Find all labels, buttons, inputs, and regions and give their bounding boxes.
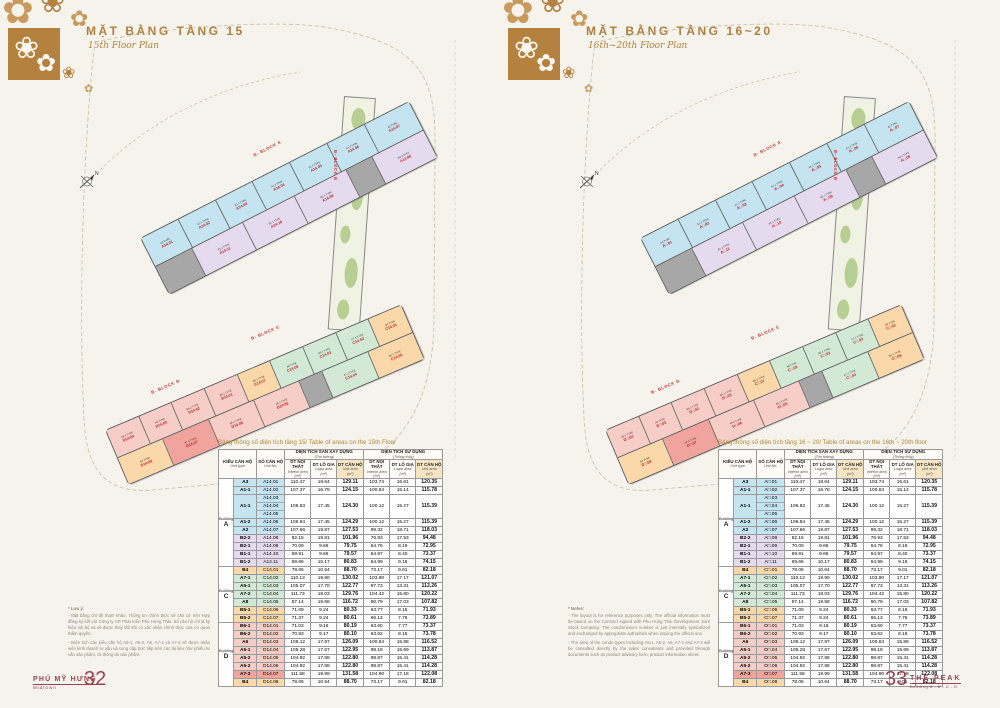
- cell-unit-number: C14.05: [257, 599, 285, 607]
- cell-unit-type: A5-1: [234, 583, 257, 591]
- cell-area-value: 98.18: [864, 647, 890, 655]
- cell-area-value: 17.45: [311, 495, 337, 519]
- page-number: 32: [84, 668, 106, 691]
- cell-area-value: 103.90: [364, 575, 390, 583]
- cell-area-value: 80.83: [337, 559, 364, 567]
- cell-area-value: 121.07: [416, 575, 443, 583]
- cell-unit-type: B2-2: [234, 535, 257, 543]
- cell-unit-number: D□.04: [757, 647, 785, 655]
- table-row: B1-1A14.1069.919.6679.5764.978.4073.37: [219, 551, 443, 559]
- cell-area-value: 7.77: [890, 623, 916, 631]
- cell-area-value: 98.87: [364, 663, 390, 671]
- cell-area-value: 9.01: [890, 567, 916, 575]
- cell-unit-type: B5-1: [734, 607, 757, 615]
- cell-area-value: 100.12: [364, 519, 390, 527]
- cell-area-value: 97.14: [285, 599, 311, 607]
- cell-area-value: 129.76: [837, 591, 864, 599]
- table-row: A7-2C14.04111.7318.03129.76104.4215.8012…: [219, 591, 443, 599]
- note-paragraph: - Diện tích các kiểu căn hộ A5-1, A5-2, …: [68, 640, 210, 658]
- page-title: MẶT BẰNG TẦNG 16~20: [586, 24, 773, 38]
- cell-unit-number: C14.07: [257, 615, 285, 623]
- cell-area-value: 130.02: [837, 575, 864, 583]
- cell-unit-type: B4: [734, 679, 757, 687]
- cell-area-value: 97.73: [864, 583, 890, 591]
- table-row: A5-2D□.05104.9217.88122.8098.8715.41114.…: [719, 655, 943, 663]
- cell-area-value: 104.92: [285, 663, 311, 671]
- page-title: MẶT BẰNG TẦNG 15: [86, 24, 245, 38]
- cell-unit-type: A7-3: [734, 671, 757, 679]
- table-row: A7-3D14.07111.5819.99131.58104.9017.1812…: [219, 671, 443, 679]
- col-header: SỐ CĂN HỘUnit No.: [257, 450, 285, 479]
- cell-area-value: 105.28: [285, 647, 311, 655]
- building-label: BuildingA: [719, 479, 734, 567]
- cell-area-value: 10.64: [811, 679, 837, 687]
- area-table-container: KIỂU CĂN HỘUnit typeSỐ CĂN HỘUnit No.DIỆ…: [718, 449, 943, 687]
- cell-area-value: 115.39: [416, 519, 443, 527]
- cell-unit-type: A3: [734, 479, 757, 487]
- cell-area-value: 118.03: [416, 527, 443, 535]
- cell-unit-number: D□.08: [757, 679, 785, 687]
- cell-area-value: 17.45: [311, 519, 337, 527]
- cell-unit-type: B4: [234, 679, 257, 687]
- cell-area-value: 115.78: [916, 487, 943, 495]
- flower-decoration: ✿ ❀ ✿ ❀ ✿ ❀ ✿: [500, 0, 615, 105]
- cell-area-value: 16.61: [890, 479, 916, 487]
- table-row: A5-2D□.06104.9217.88122.8098.8715.41114.…: [719, 663, 943, 671]
- cell-area-value: 9.66: [311, 543, 337, 551]
- cell-area-value: 10.64: [311, 679, 337, 687]
- cell-unit-number: D□.03: [757, 639, 785, 647]
- cell-area-value: 69.66: [285, 559, 311, 567]
- col-header: DIỆN TÍCH SÀN XÂY DỰNG(Tim tường): [285, 450, 364, 460]
- cell-area-value: 9.16: [890, 559, 916, 567]
- brochure-page: ✿ ❀ ✿ ❀ ✿ ❀ ✿ MẶT BẰNG TẦNG 16~20 16th~2…: [500, 0, 1000, 708]
- cell-unit-number: D14.03: [257, 639, 285, 647]
- cell-unit-type: A8: [234, 599, 257, 607]
- cell-unit-type: B6-1: [234, 623, 257, 631]
- cell-area-value: 72.95: [416, 543, 443, 551]
- area-table-container: KIỂU CĂN HỘUnit typeSỐ CĂN HỘUnit No.DIỆ…: [218, 449, 443, 687]
- cell-area-value: 17.17: [390, 575, 416, 583]
- cell-area-value: 120.35: [916, 479, 943, 487]
- compass-icon: N: [76, 170, 100, 194]
- note-paragraph: - The area of the condo types including …: [568, 640, 710, 658]
- block-a-label: B- BLOCK A: [253, 139, 282, 157]
- cell-area-value: 106.83: [285, 495, 311, 519]
- cell-area-value: 115.78: [416, 487, 443, 495]
- cell-area-value: 9.17: [311, 631, 337, 639]
- table-row: A5-1C□.03105.0717.70122.7797.7313.31113.…: [719, 583, 943, 591]
- cell-area-value: 104.92: [785, 663, 811, 671]
- cell-area-value: 94.48: [416, 535, 443, 543]
- cell-area-value: 124.30: [337, 495, 364, 519]
- cell-area-value: 15.27: [890, 519, 916, 527]
- cell-unit-number: A14.06: [257, 519, 285, 527]
- brochure-spread: JAN 2/2018 ✿ ❀ ✿ ❀ ✿ ❀ ✿ MẶT BẰNG TẦNG 1…: [0, 0, 1000, 708]
- cell-unit-type: B2-2: [734, 535, 757, 543]
- cell-area-value: 70.09: [785, 543, 811, 551]
- cell-unit-type: A1-2: [234, 519, 257, 527]
- table-row: A1-1A14.02107.3716.78124.15100.6415.1411…: [219, 487, 443, 495]
- cell-unit-type: A5-2: [234, 663, 257, 671]
- cell-unit-number: A14.09: [257, 543, 285, 551]
- cell-area-value: 79.75: [837, 543, 864, 551]
- cell-area-value: 64.99: [864, 559, 890, 567]
- cell-area-value: 113.87: [416, 647, 443, 655]
- cell-unit-number: C14.01: [257, 567, 285, 575]
- cell-area-value: 120.22: [916, 591, 943, 599]
- table-row: A5-2D14.06104.9217.88122.8098.8715.41114…: [219, 663, 443, 671]
- cell-area-value: 114.28: [416, 663, 443, 671]
- cell-area-value: 17.67: [811, 647, 837, 655]
- table-row: A5-1C14.03105.0717.70122.7797.7313.31113…: [219, 583, 443, 591]
- cell-area-value: 100.12: [864, 519, 890, 527]
- cell-area-value: 17.97: [811, 639, 837, 647]
- cell-area-value: 122.77: [337, 583, 364, 591]
- cell-unit-type: A1-2: [734, 519, 757, 527]
- col-header: DIỆN TÍCH SÀN XÂY DỰNG(Tim tường): [785, 450, 864, 460]
- cell-area-value: 73.37: [416, 551, 443, 559]
- cell-area-value: 16.78: [311, 487, 337, 495]
- table-row: BuildingCB4C14.0178.0610.6488.7073.179.0…: [219, 567, 443, 575]
- cell-area-value: 108.12: [285, 639, 311, 647]
- cell-area-value: 78.06: [785, 567, 811, 575]
- cell-area-value: 129.76: [337, 591, 364, 599]
- cell-area-value: 71.37: [785, 615, 811, 623]
- cell-unit-type: A7-1: [234, 575, 257, 583]
- cell-area-value: 17.45: [811, 519, 837, 527]
- col-header: DT CĂN HỘUnit area(m²): [916, 460, 943, 479]
- block-c-label: B- BLOCK C: [750, 324, 780, 341]
- cell-unit-type: B1-2: [734, 559, 757, 567]
- cell-area-value: 122.95: [337, 647, 364, 655]
- cell-unit-number: D□.06: [757, 663, 785, 671]
- cell-area-value: 19.99: [811, 671, 837, 679]
- cell-area-value: 110.47: [285, 479, 311, 487]
- cell-unit-type: A5-2: [234, 655, 257, 663]
- cell-area-value: 66.13: [364, 615, 390, 623]
- cell-area-value: 13.31: [390, 583, 416, 591]
- cell-area-value: 80.33: [337, 607, 364, 615]
- table-row: A1-2A□.06106.8417.45124.29100.1215.27115…: [719, 519, 943, 527]
- cell-area-value: 74.15: [416, 559, 443, 567]
- note-paragraph: - Mặt bằng chỉ để tham khảo. Thông tin c…: [68, 613, 210, 637]
- cell-area-value: 8.16: [390, 607, 416, 615]
- table-row: B2-2A14.0882.1519.81101.9676.9317.5394.4…: [219, 535, 443, 543]
- cell-area-value: 122.80: [337, 663, 364, 671]
- cell-area-value: 105.28: [785, 647, 811, 655]
- cell-area-value: 7.77: [390, 623, 416, 631]
- cell-area-value: 10.64: [311, 567, 337, 575]
- block-b-label: B- BLOCK B: [333, 150, 338, 181]
- area-table: KIỂU CĂN HỘUnit typeSỐ CĂN HỘUnit No.DIỆ…: [218, 449, 443, 687]
- disclaimer-note: * Lưu ý: - Mặt bằng chỉ để tham khảo. Th…: [68, 606, 210, 661]
- table-row: A8C14.0597.1419.58116.7290.7917.03107.82: [219, 599, 443, 607]
- flower-icon: ✿: [536, 52, 556, 76]
- cell-area-value: 104.92: [785, 655, 811, 663]
- cell-area-value: 15.27: [390, 519, 416, 527]
- cell-area-value: 9.16: [811, 623, 837, 631]
- table-row: B5-2C14.0771.379.2480.6166.137.7673.89: [219, 615, 443, 623]
- cell-area-value: 107.82: [916, 599, 943, 607]
- cell-area-value: 69.91: [785, 551, 811, 559]
- cell-area-value: 107.82: [416, 599, 443, 607]
- cell-area-value: 90.79: [364, 599, 390, 607]
- cell-area-value: 73.17: [364, 679, 390, 687]
- cell-unit-type: A5-2: [734, 663, 757, 671]
- cell-area-value: 103.74: [864, 479, 890, 487]
- cell-area-value: 80.83: [837, 559, 864, 567]
- table-row: BuildingCB4C□.0178.0610.6488.7073.179.01…: [719, 567, 943, 575]
- table-row: B1-2A14.1169.6610.1780.8364.999.1674.15: [219, 559, 443, 567]
- cell-unit-number: A14.02: [257, 487, 285, 495]
- cell-area-value: 80.10: [337, 631, 364, 639]
- cell-area-value: 17.17: [890, 575, 916, 583]
- cell-area-value: 129.11: [337, 479, 364, 487]
- cell-area-value: 111.58: [785, 671, 811, 679]
- cell-area-value: 106.83: [785, 495, 811, 519]
- cell-area-value: 82.15: [785, 535, 811, 543]
- cell-area-value: 17.53: [390, 535, 416, 543]
- cell-area-value: 9.24: [311, 615, 337, 623]
- cell-unit-number: C14.06: [257, 607, 285, 615]
- cell-unit-number: C□.05: [757, 599, 785, 607]
- col-header: SỐ CĂN HỘUnit No.: [757, 450, 785, 479]
- cell-area-value: 18.71: [390, 527, 416, 535]
- cell-area-value: 9.66: [811, 551, 837, 559]
- cell-area-value: 106.84: [785, 519, 811, 527]
- cell-area-value: 18.03: [811, 591, 837, 599]
- cell-area-value: 73.17: [864, 567, 890, 575]
- table-row: B1-2A□.1169.6610.1780.8364.999.1674.15: [719, 559, 943, 567]
- col-header: DT NỘI THẤTInterior area(m²): [364, 460, 390, 479]
- building-label: BuildingD: [719, 623, 734, 687]
- cell-area-value: 10.17: [311, 559, 337, 567]
- table-row: B2-2A□.0882.1519.81101.9676.9317.5394.48: [719, 535, 943, 543]
- cell-area-value: 63.77: [864, 607, 890, 615]
- cell-area-value: 104.92: [285, 655, 311, 663]
- cell-unit-number: D□.02: [757, 631, 785, 639]
- cell-area-value: 17.97: [311, 639, 337, 647]
- gold-square-ornament: [508, 28, 560, 80]
- cell-area-value: 80.10: [837, 631, 864, 639]
- cell-area-value: 9.16: [390, 559, 416, 567]
- col-header: DT NỘI THẤTInterior area(m²): [864, 460, 890, 479]
- table-row: A1-1A□.03A□.04A□.05106.8317.45124.30100.…: [719, 495, 943, 519]
- table-row: A1-1A□.02107.3716.78124.15100.6415.14115…: [719, 487, 943, 495]
- table-row: BuildingAA3A□.01110.4718.64129.11103.741…: [719, 479, 943, 487]
- cell-area-value: 116.52: [416, 639, 443, 647]
- cell-area-value: 126.09: [337, 639, 364, 647]
- cell-area-value: 116.72: [837, 599, 864, 607]
- page-subtitle: 15th Floor Plan: [88, 41, 159, 51]
- table-row: A8C□.0597.1419.58116.7290.7917.03107.82: [719, 599, 943, 607]
- cell-area-value: 104.90: [364, 671, 390, 679]
- building-ab-floorplan: A3 TYPEA14.01A1-1 TYPEA14.02A1-1 TYPEA14…: [140, 101, 438, 295]
- cell-unit-number: A□.01: [757, 479, 785, 487]
- cell-area-value: 9.24: [811, 615, 837, 623]
- cell-area-value: 107.66: [785, 527, 811, 535]
- cell-area-value: 19.58: [811, 599, 837, 607]
- cell-unit-type: B5-2: [234, 615, 257, 623]
- flower-icon: ✿: [502, 0, 534, 30]
- brand-block-right: THE PEAK Building A - B - C - D: [910, 675, 961, 689]
- col-header: DT NỘI THẤTInterior area(m²): [285, 460, 311, 479]
- col-header: DT LÔ GIALogia area(m²): [811, 460, 837, 479]
- cell-area-value: 9.24: [311, 607, 337, 615]
- table-row: BuildingDB6-1D14.0171.039.1680.1963.607.…: [219, 623, 443, 631]
- cell-area-value: 10.17: [811, 559, 837, 567]
- cell-unit-number: D14.01: [257, 623, 285, 631]
- flower-icon: ✿: [36, 52, 56, 76]
- table-row: A5-1D□.04105.2817.67122.9598.1815.69113.…: [719, 647, 943, 655]
- cell-area-value: 15.69: [390, 647, 416, 655]
- note-heading: * Notes:: [568, 606, 710, 612]
- cell-unit-number: A□.10: [757, 551, 785, 559]
- cell-area-value: 63.62: [364, 631, 390, 639]
- col-header: DT LÔ GIALogia area(m²): [390, 460, 416, 479]
- flower-icon: ✿: [84, 84, 93, 95]
- col-header: DIỆN TÍCH SỬ DỤNG(Thông thủy): [364, 450, 443, 460]
- col-header: DT CĂN HỘUnit area(m²): [416, 460, 443, 479]
- cell-area-value: 115.39: [916, 519, 943, 527]
- cell-area-value: 19.58: [311, 599, 337, 607]
- col-header: DT CĂN HỘUnit area(m²): [337, 460, 364, 479]
- note-paragraph: - The layout is for reference purposes o…: [568, 613, 710, 637]
- cell-unit-type: A1-1: [734, 487, 757, 495]
- cell-unit-number: A14.11: [257, 559, 285, 567]
- cell-area-value: 76.93: [864, 535, 890, 543]
- flower-icon: ❀: [562, 66, 575, 82]
- brochure-page: ✿ ❀ ✿ ❀ ✿ ❀ ✿ MẶT BẰNG TẦNG 15 15th Floo…: [0, 0, 500, 708]
- brand-name: THE PEAK: [910, 675, 961, 684]
- table-row: A1-1A14.03A14.04A14.05106.8317.45124.301…: [219, 495, 443, 519]
- cell-area-value: 8.16: [890, 631, 916, 639]
- cell-area-value: 97.14: [785, 599, 811, 607]
- cell-area-value: 122.80: [337, 655, 364, 663]
- cell-area-value: 124.30: [837, 495, 864, 519]
- col-header: DT LÔ GIALogia area(m²): [311, 460, 337, 479]
- page-subtitle: 16th~20th Floor Plan: [588, 41, 687, 51]
- table-row: BuildingDB6-1D□.0171.039.1680.1963.607.7…: [719, 623, 943, 631]
- cell-unit-number: D14.07: [257, 671, 285, 679]
- cell-area-value: 131.58: [337, 671, 364, 679]
- cell-unit-number: C14.02: [257, 575, 285, 583]
- cell-unit-number: C□.02: [757, 575, 785, 583]
- cell-unit-type: A6: [234, 639, 257, 647]
- note-heading: * Lưu ý:: [68, 606, 210, 612]
- area-table-title: Bảng thông số diện tích tầng 16 ~ 20/ Ta…: [718, 439, 927, 446]
- gold-square-ornament: [8, 28, 60, 80]
- cell-unit-type: B1-1: [734, 551, 757, 559]
- cell-area-value: 73.78: [916, 631, 943, 639]
- cell-area-value: 80.33: [837, 607, 864, 615]
- cell-area-value: 15.88: [390, 639, 416, 647]
- cell-unit-type: A6: [734, 639, 757, 647]
- disclaimer-note: * Notes: - The layout is for reference p…: [568, 606, 710, 661]
- cell-area-value: 17.88: [811, 663, 837, 671]
- cell-area-value: 73.17: [364, 567, 390, 575]
- cell-area-value: 114.28: [916, 655, 943, 663]
- cell-area-value: 71.09: [285, 607, 311, 615]
- cell-area-value: 63.62: [864, 631, 890, 639]
- flower-icon: ❀: [540, 0, 565, 18]
- table-row: B6-2D14.0270.939.1780.1063.628.1673.78: [219, 631, 443, 639]
- brand-subname: Building A - B - C - D: [910, 684, 961, 689]
- cell-area-value: 120.35: [416, 479, 443, 487]
- cell-unit-number: C14.04: [257, 591, 285, 599]
- cell-unit-type: A2: [734, 527, 757, 535]
- cell-area-value: 15.14: [390, 487, 416, 495]
- cell-unit-type: A7-2: [734, 591, 757, 599]
- cell-area-value: 114.28: [416, 655, 443, 663]
- cell-area-value: 115.39: [916, 495, 943, 519]
- cell-unit-type: B5-1: [234, 607, 257, 615]
- cell-area-value: 100.12: [364, 495, 390, 519]
- cell-unit-number: D□.01: [757, 623, 785, 631]
- cell-area-value: 16.61: [390, 479, 416, 487]
- cell-area-value: 100.64: [364, 487, 390, 495]
- cell-area-value: 9.24: [811, 607, 837, 615]
- cell-area-value: 15.14: [890, 487, 916, 495]
- cell-unit-number: C14.03: [257, 583, 285, 591]
- table-row: A5-2D14.05104.9217.88122.8098.8715.41114…: [219, 655, 443, 663]
- table-row: B2-1A14.0970.099.6679.7564.768.1972.95: [219, 543, 443, 551]
- cell-area-value: 70.93: [285, 631, 311, 639]
- cell-area-value: 15.41: [890, 655, 916, 663]
- cell-unit-type: A3: [234, 479, 257, 487]
- col-header: KIỂU CĂN HỘUnit type: [219, 450, 257, 479]
- cell-unit-number: A□.03A□.04A□.05: [757, 495, 785, 519]
- cell-unit-number: A14.10: [257, 551, 285, 559]
- cell-area-value: 110.12: [285, 575, 311, 583]
- cell-area-value: 122.80: [837, 663, 864, 671]
- cell-unit-type: B1-1: [234, 551, 257, 559]
- cell-unit-number: D14.04: [257, 647, 285, 655]
- flower-icon: ❀: [40, 0, 65, 18]
- cell-unit-number: C□.01: [757, 567, 785, 575]
- cell-area-value: 8.19: [890, 543, 916, 551]
- cell-area-value: 72.95: [916, 543, 943, 551]
- table-row: B6-2D□.0270.939.1780.1063.628.1673.78: [719, 631, 943, 639]
- cell-area-value: 73.89: [416, 615, 443, 623]
- cell-area-value: 17.53: [890, 535, 916, 543]
- cell-area-value: 127.53: [837, 527, 864, 535]
- cell-area-value: 122.80: [837, 655, 864, 663]
- cell-unit-number: D14.06: [257, 663, 285, 671]
- cell-area-value: 9.66: [811, 543, 837, 551]
- cell-unit-number: D□.07: [757, 671, 785, 679]
- cell-area-value: 9.16: [311, 623, 337, 631]
- cell-area-value: 107.37: [285, 487, 311, 495]
- cell-area-value: 19.87: [811, 527, 837, 535]
- cell-area-value: 116.52: [916, 639, 943, 647]
- cell-unit-type: B1-2: [234, 559, 257, 567]
- cell-area-value: 104.42: [364, 591, 390, 599]
- cell-area-value: 113.87: [916, 647, 943, 655]
- cell-unit-number: C□.06: [757, 607, 785, 615]
- cell-area-value: 70.09: [285, 543, 311, 551]
- cell-area-value: 100.64: [864, 487, 890, 495]
- cell-area-value: 15.80: [890, 591, 916, 599]
- cell-unit-type: B6-1: [734, 623, 757, 631]
- cell-area-value: 105.07: [285, 583, 311, 591]
- cell-area-value: 19.90: [311, 575, 337, 583]
- cell-unit-type: A5-2: [734, 655, 757, 663]
- cell-area-value: 122.77: [837, 583, 864, 591]
- cell-unit-type: A1-1: [234, 487, 257, 495]
- cell-area-value: 18.64: [311, 479, 337, 487]
